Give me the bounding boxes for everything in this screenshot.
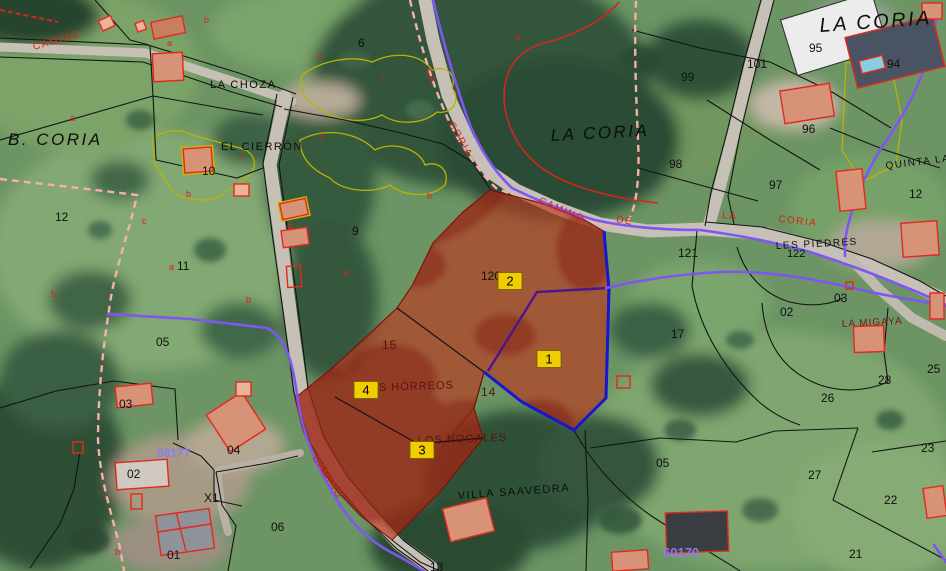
map-label-pnum-05-e: 05 xyxy=(656,456,670,470)
map-label-rl-a5: a xyxy=(169,262,174,272)
map-label-pnum-05-w: 05 xyxy=(156,335,170,349)
map-label-rl-b7: b xyxy=(115,547,120,557)
map-label-pnum-02-w: 02 xyxy=(127,467,141,481)
map-label-pnum-x1: X1 xyxy=(204,491,219,505)
map-label-rl-a1: a xyxy=(167,38,172,48)
map-label-admin-60170: 60170 xyxy=(663,545,699,560)
map-label-rl-b6: b xyxy=(516,32,521,42)
map-label-rl-c3: c xyxy=(381,74,386,84)
map-label-pnum-03-w: 03 xyxy=(119,397,133,411)
map-label-pnum-26: 26 xyxy=(821,391,835,405)
map-label-pnum-02-e: 02 xyxy=(780,305,794,319)
map-label-pnum-15: 15 xyxy=(382,338,397,352)
map-label-pnum-9: 9 xyxy=(352,224,359,238)
map-label-pnum-17: 17 xyxy=(671,327,685,341)
map-label-zone-b-coria: B. CORIA xyxy=(8,130,103,149)
map-label-rl-b1: b xyxy=(204,15,209,25)
map-label-rl-d1: d xyxy=(287,221,292,231)
map-label-pnum-10: 10 xyxy=(202,164,216,178)
map-label-rl-c4: c xyxy=(320,132,325,142)
map-label-pnum-01: 01 xyxy=(167,548,181,562)
parcel-marker-number: 1 xyxy=(545,352,552,367)
map-label-pnum-12-w: 12 xyxy=(55,210,69,224)
map-label-rl-c1: c xyxy=(239,151,244,161)
parcel-marker-number: 3 xyxy=(418,443,425,458)
map-canvas[interactable]: B. CORIALA CORIALA CORIALA CHOZAEL CIERR… xyxy=(0,0,946,571)
map-label-pnum-97: 97 xyxy=(769,178,783,192)
parcel-marker-number: 2 xyxy=(506,274,513,289)
map-label-rl-b5: b xyxy=(427,191,432,201)
map-label-rl-a4: a xyxy=(344,267,349,277)
cadastral-map-svg[interactable]: B. CORIALA CORIALA CORIALA CHOZAEL CIERR… xyxy=(0,0,946,571)
map-label-pnum-14: 14 xyxy=(481,385,496,399)
map-label-pnum-98: 98 xyxy=(669,157,683,171)
map-label-pnum-12-e: 12 xyxy=(909,187,923,201)
map-label-pnum-22: 22 xyxy=(884,493,898,507)
map-label-pnum-95: 95 xyxy=(809,41,823,55)
map-label-rl-a3: a xyxy=(317,52,322,62)
map-label-rl-b2: b xyxy=(186,189,191,199)
map-label-admin-58177: 58177 xyxy=(157,446,191,460)
map-label-pnum-121: 121 xyxy=(678,246,698,260)
map-label-pnum-28: 28 xyxy=(878,373,892,387)
map-label-pnum-23: 23 xyxy=(921,441,935,455)
map-label-place-la-choza: LA CHOZA xyxy=(210,79,276,91)
map-label-pnum-06: 06 xyxy=(271,520,285,534)
map-label-road-la-2: LA xyxy=(722,210,738,222)
map-label-pnum-13: 13 xyxy=(430,560,444,571)
map-label-pnum-27: 27 xyxy=(808,468,822,482)
map-label-pnum-122: 122 xyxy=(787,248,805,260)
map-label-rl-a2: a xyxy=(70,113,75,123)
map-label-rl-b4: b xyxy=(246,295,251,305)
parcel-marker-3[interactable]: 3 xyxy=(410,442,434,459)
map-label-pnum-101: 101 xyxy=(747,57,767,71)
map-label-pnum-04: 04 xyxy=(227,443,241,457)
parcel-marker-4[interactable]: 4 xyxy=(354,382,378,399)
parcel-marker-number: 4 xyxy=(362,383,369,398)
map-label-pnum-99: 99 xyxy=(681,70,695,84)
parcel-marker-2[interactable]: 2 xyxy=(498,273,522,290)
map-label-place-horreos: S HÓRREOS xyxy=(379,378,454,394)
map-label-pnum-96: 96 xyxy=(802,122,816,136)
map-label-pnum-03-e: 03 xyxy=(834,291,848,305)
map-label-pnum-21: 21 xyxy=(849,547,863,561)
map-label-pnum-11: 11 xyxy=(177,259,190,273)
map-label-pnum-94: 94 xyxy=(887,57,901,71)
map-label-pnum-6: 6 xyxy=(358,36,365,50)
map-label-place-el-cierron: EL CIERRÓN xyxy=(221,140,303,153)
map-label-pnum-25: 25 xyxy=(927,362,941,376)
map-label-rl-b3: b xyxy=(51,289,56,299)
parcel-marker-1[interactable]: 1 xyxy=(537,351,561,368)
map-label-rl-c2: c xyxy=(142,216,147,226)
